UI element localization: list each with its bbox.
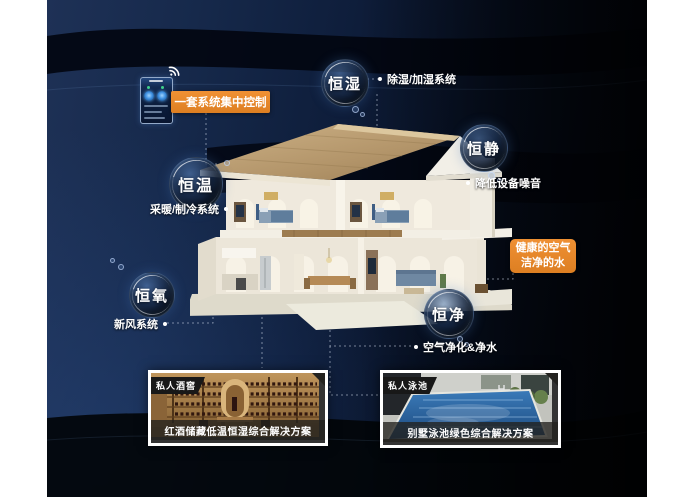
pool-card-badge: 私人泳池 xyxy=(383,377,437,394)
bubble-constant-humidity: 恒湿 xyxy=(321,59,369,107)
phone-dial-icon xyxy=(144,91,154,101)
bubble-satellite-dot xyxy=(360,112,365,117)
phone-status-dot xyxy=(147,86,150,89)
wine-card-badge: 私人酒窖 xyxy=(151,377,205,394)
phone-text-row xyxy=(144,117,165,119)
callout-purification-system: 空气净化&净水 xyxy=(414,340,497,353)
card-corner-fold xyxy=(545,373,558,386)
bubble-satellite-dot xyxy=(352,106,359,113)
bubble-satellite-dot xyxy=(110,258,115,263)
card-corner-fold xyxy=(312,373,325,386)
pool-card-caption: 别墅泳池绿色综合解决方案 xyxy=(383,422,558,442)
callout-noise-reduction: 降低设备噪音 xyxy=(466,176,541,189)
bubble-satellite-dot xyxy=(224,160,230,166)
bubble-satellite-dot xyxy=(118,264,124,270)
wine-card-caption: 红酒储藏低温恒湿综合解决方案 xyxy=(151,420,325,440)
healthy-air-water-label: 健康的空气 洁净的水 xyxy=(510,239,576,273)
callout-hvac-system: 采暖/制冷系统 xyxy=(150,202,228,215)
callout-humidity-system: 除湿/加湿系统 xyxy=(378,72,456,85)
bullet-dot-icon xyxy=(414,345,418,349)
phone-dial-icon xyxy=(157,91,167,101)
control-app-phone xyxy=(140,77,173,124)
callout-text: 空气净化&净水 xyxy=(423,339,497,355)
phone-titlebar xyxy=(149,80,163,82)
phone-status-dot xyxy=(161,86,164,89)
highlight-line1: 健康的空气 xyxy=(516,241,571,256)
callout-text: 降低设备噪音 xyxy=(475,175,541,191)
phone-text-row xyxy=(144,111,162,113)
callout-text: 除湿/加湿系统 xyxy=(387,71,456,87)
wine-cellar-card: 私人酒窖 红酒储藏低温恒湿综合解决方案 xyxy=(148,370,328,446)
bubble-constant-oxygen: 恒氧 xyxy=(129,272,175,318)
bullet-dot-icon xyxy=(224,207,228,211)
infographic-canvas: 一套系统集中控制 xyxy=(0,0,700,497)
wine-cellar-photo: 私人酒窖 红酒储藏低温恒湿综合解决方案 xyxy=(151,373,325,443)
phone-text-row xyxy=(144,105,168,107)
callout-text: 新风系统 xyxy=(114,316,158,332)
highlight-line2: 洁净的水 xyxy=(521,256,565,271)
bullet-dot-icon xyxy=(378,77,382,81)
bubble-constant-quiet: 恒静 xyxy=(460,124,508,172)
pool-photo: 私人泳池 别墅泳池绿色综合解决方案 xyxy=(383,373,558,445)
bubble-constant-purity: 恒净 xyxy=(424,289,474,339)
wifi-icon xyxy=(166,59,186,79)
callout-fresh-air-system: 新风系统 xyxy=(114,317,167,330)
bullet-dot-icon xyxy=(466,181,470,185)
bullet-dot-icon xyxy=(163,322,167,326)
callout-text: 采暖/制冷系统 xyxy=(150,201,219,217)
pool-card: 私人泳池 别墅泳池绿色综合解决方案 xyxy=(380,370,561,448)
